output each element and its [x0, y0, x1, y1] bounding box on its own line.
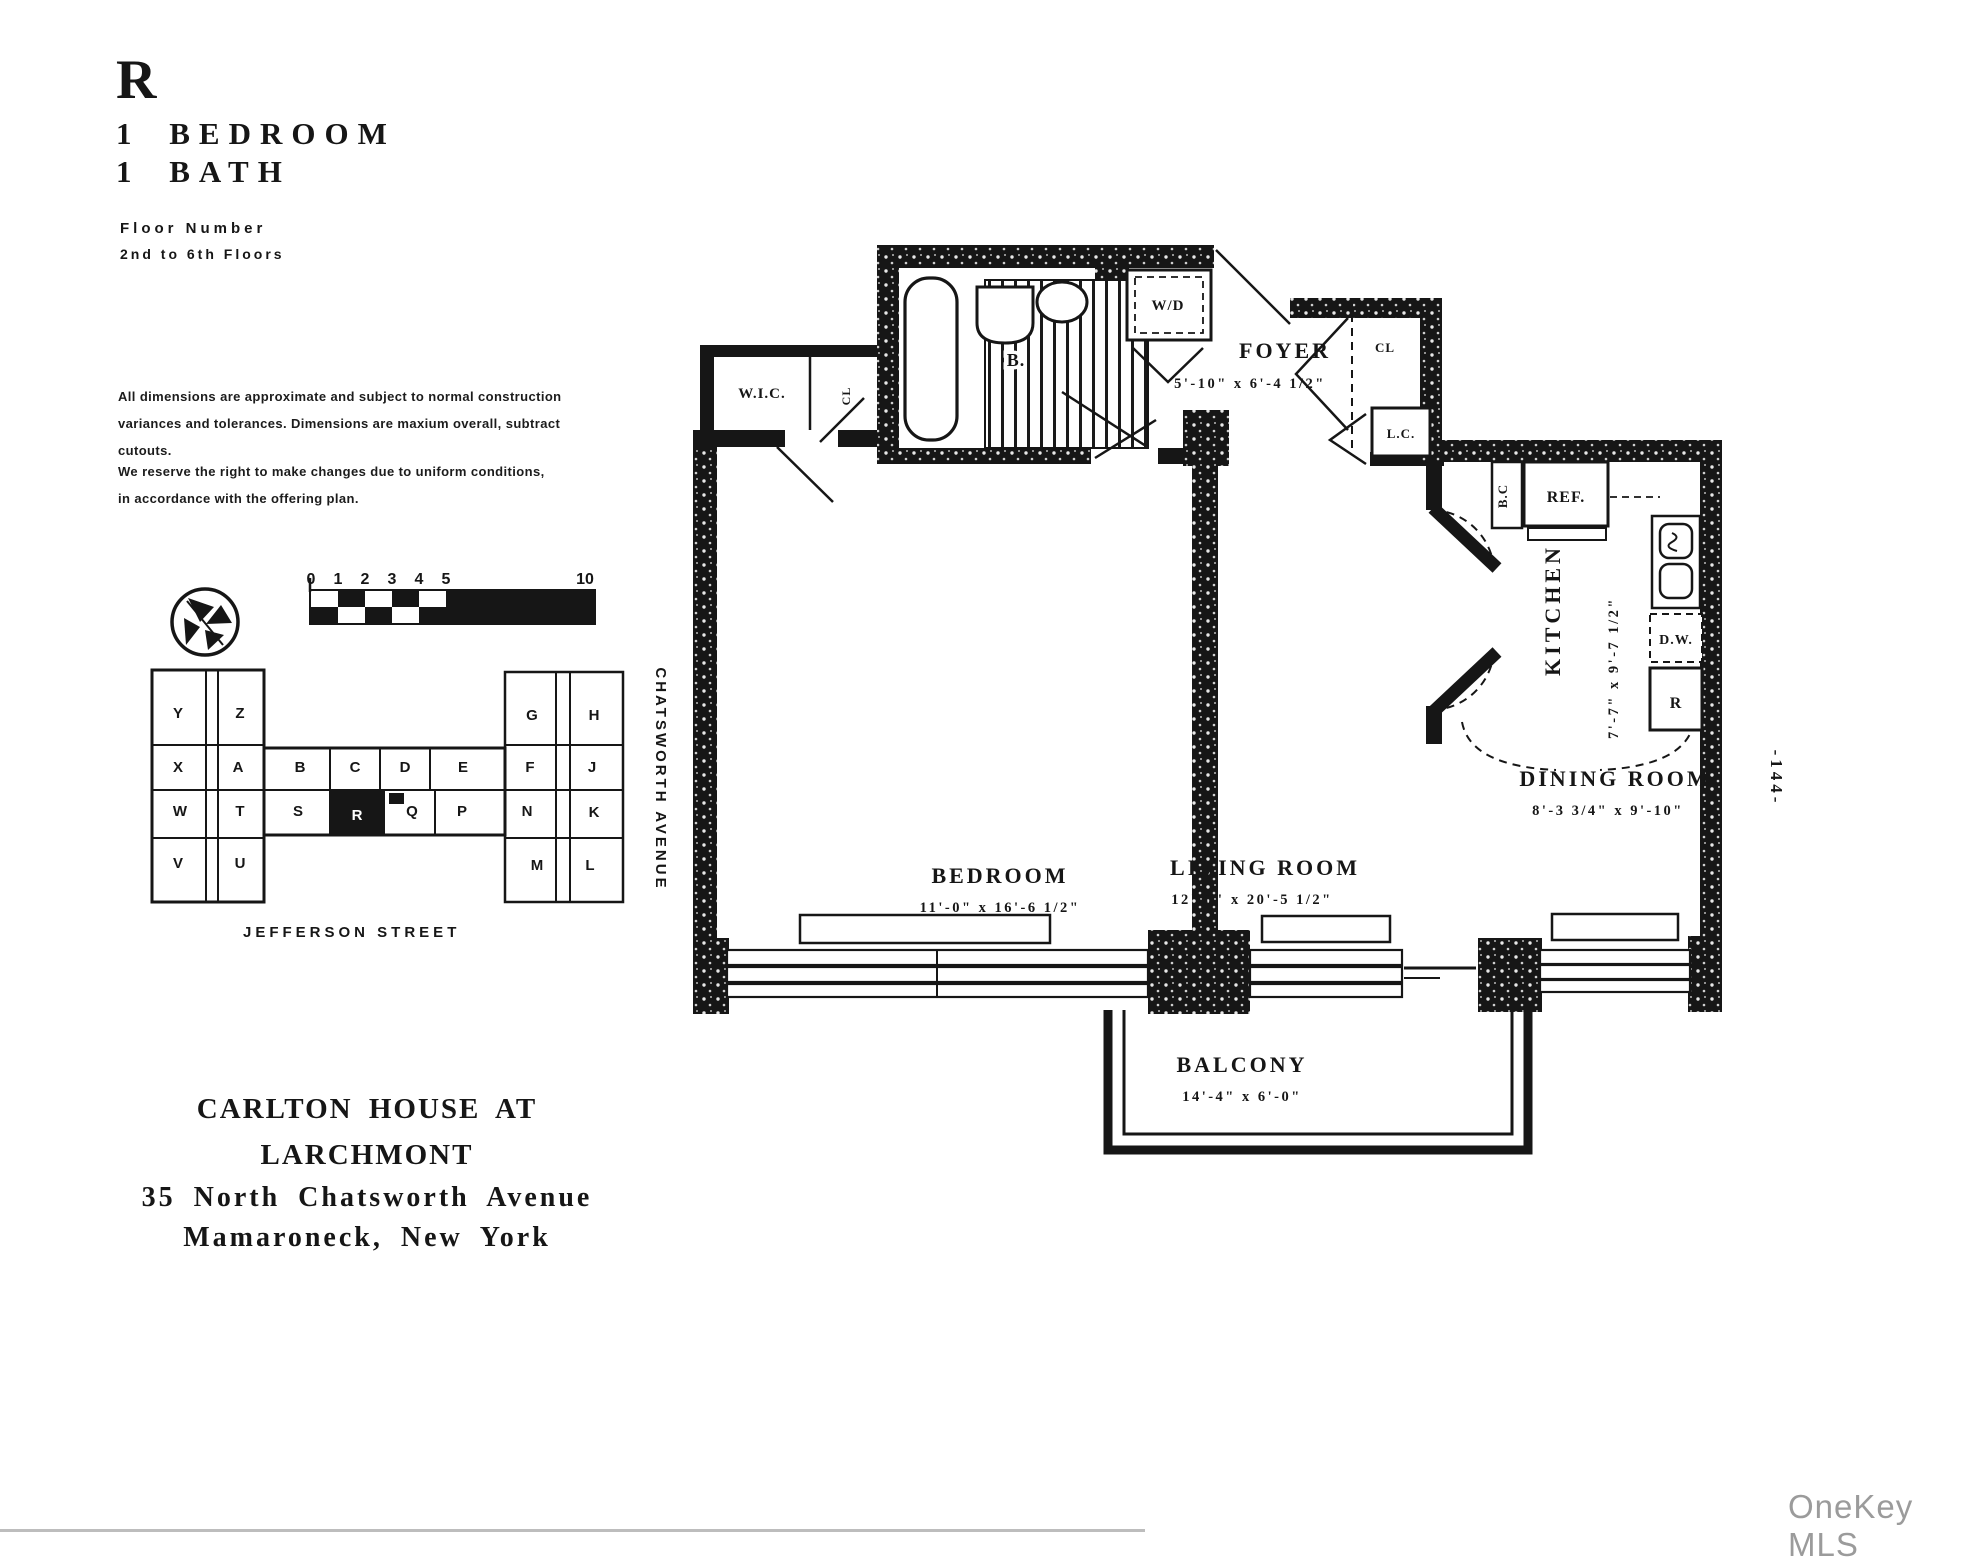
site-unit-label: H: [589, 707, 600, 724]
floor-plan: B. W/D CL L.C. FOYER 5'-10" x 6'-4 1/2" …: [680, 235, 1750, 1175]
site-plan-building-outline: [152, 670, 623, 902]
kitchen-label: KITCHEN: [1540, 544, 1565, 676]
closet-door: [1296, 318, 1348, 430]
bedroom-label: BEDROOM: [931, 863, 1068, 888]
balcony-dims: 14'-4" x 6'-0": [1182, 1089, 1302, 1105]
stove-icon: [1652, 516, 1700, 608]
disclaimer-dimensions: All dimensions are approximate and subje…: [118, 383, 568, 464]
range-label: R: [1670, 695, 1683, 712]
bedroom-curtain-box: [800, 915, 1050, 943]
scale-tick: 10: [576, 571, 594, 588]
bathroom: B.: [905, 278, 1148, 448]
site-unit-label: V: [173, 855, 183, 872]
dining-curtain-box: [1552, 914, 1678, 940]
base-cabinet-label: B.C: [1495, 484, 1510, 508]
dining-room-label: DINING ROOM: [1519, 766, 1710, 791]
unit-type-baths: 1 BATH: [116, 154, 291, 190]
page-number: -144-: [1766, 738, 1786, 818]
scan-artifact-line: [0, 1529, 1145, 1532]
site-unit-label: A: [233, 759, 244, 776]
site-unit-label: L: [585, 857, 594, 874]
site-unit-label: K: [589, 804, 600, 821]
scale-tick: 3: [388, 571, 397, 588]
site-plan-detail: [389, 793, 404, 804]
site-unit-label: B: [295, 759, 306, 776]
sink-icon: [977, 287, 1033, 343]
dining-room-dims: 8'-3 3/4" x 9'-10": [1532, 803, 1684, 819]
washer-dryer-label: W/D: [1152, 298, 1185, 314]
address-line2: Mamaroneck, New York: [92, 1218, 642, 1258]
floor-number-label: Floor Number: [120, 220, 266, 237]
entry-door: [1216, 250, 1290, 324]
scale-bar-segments: [310, 578, 595, 624]
scale-tick: 2: [361, 571, 370, 588]
site-unit-label-highlighted: R: [352, 807, 363, 824]
site-unit-label: J: [588, 759, 596, 776]
toilet-icon: [1037, 282, 1087, 322]
walk-in-closet-label: W.I.C.: [738, 386, 786, 402]
living-room-dims: 12'-0" x 20'-5 1/2": [1171, 892, 1332, 908]
scale-bar: 0 1 2 3 4 5 10: [295, 555, 615, 633]
bedroom-dims: 11'-0" x 16'-6 1/2": [920, 900, 1081, 916]
linen-closet-door: [1330, 414, 1366, 464]
site-unit-label: G: [526, 707, 538, 724]
site-unit-label: X: [173, 759, 183, 776]
foyer-dims: 5'-10" x 6'-4 1/2": [1174, 376, 1326, 392]
site-unit-label: E: [458, 759, 468, 776]
bath-label: B.: [1007, 350, 1026, 370]
site-unit-label: Z: [235, 705, 244, 722]
linen-closet-label: L.C.: [1387, 426, 1416, 441]
watermark: OneKey MLS: [1788, 1488, 1988, 1564]
balcony-label: BALCONY: [1176, 1052, 1307, 1077]
kitchen-dims: 7'-7" x 9'-7 1/2": [1606, 597, 1622, 739]
living-room-label: LIVING ROOM: [1170, 855, 1360, 880]
site-unit-label: F: [525, 759, 534, 776]
building-name: CARLTON HOUSE AT LARCHMONT: [92, 1086, 642, 1178]
living-curtain-box: [1262, 916, 1390, 942]
closet2-label: CL: [839, 387, 853, 406]
floor-number-value: 2nd to 6th Floors: [120, 246, 285, 262]
scale-tick: 1: [334, 571, 343, 588]
closet-label: CL: [1375, 340, 1395, 355]
site-unit-label: C: [350, 759, 361, 776]
foyer-label: FOYER: [1239, 338, 1331, 363]
refrigerator-label: REF.: [1547, 489, 1586, 506]
site-unit-label: M: [531, 857, 544, 874]
scale-tick: 4: [415, 571, 424, 588]
disclaimer-changes: We reserve the right to make changes due…: [118, 458, 568, 512]
kitchen: B.C REF. D.W. R KITCHEN 7'-7" x 9'-7 1/2…: [1432, 462, 1702, 770]
bathtub-icon: [905, 278, 957, 440]
address-block: CARLTON HOUSE AT LARCHMONT 35 North Chat…: [92, 1086, 642, 1258]
site-unit-label: P: [457, 803, 467, 820]
site-unit-label: T: [235, 803, 244, 820]
site-unit-label: U: [235, 855, 246, 872]
walk-in-closet-door: [777, 447, 833, 502]
dishwasher-label: D.W.: [1659, 633, 1693, 648]
address-line1: 35 North Chatsworth Avenue: [92, 1178, 642, 1218]
compass-icon: [165, 580, 249, 666]
balcony: BALCONY 14'-4" x 6'-0": [1108, 1010, 1528, 1150]
site-unit-label: D: [400, 759, 411, 776]
site-unit-label: S: [293, 803, 303, 820]
unit-type-bedrooms: 1 BEDROOM: [116, 116, 396, 152]
site-key-plan: Y Z X A B C D E F W T S R Q P N V U G H …: [140, 655, 640, 915]
kitchen-dining-door-arc: [1462, 722, 1556, 770]
site-unit-label: Y: [173, 705, 183, 722]
street-label: JEFFERSON STREET: [243, 924, 460, 941]
unit-letter: R: [116, 48, 162, 112]
avenue-label: CHATSWORTH AVENUE: [651, 659, 669, 899]
site-unit-label: W: [173, 803, 188, 820]
scale-tick: 5: [442, 571, 451, 588]
site-unit-label: Q: [406, 803, 418, 820]
walk-in-closet: W.I.C. CL: [738, 357, 864, 502]
site-unit-label: N: [522, 803, 533, 820]
